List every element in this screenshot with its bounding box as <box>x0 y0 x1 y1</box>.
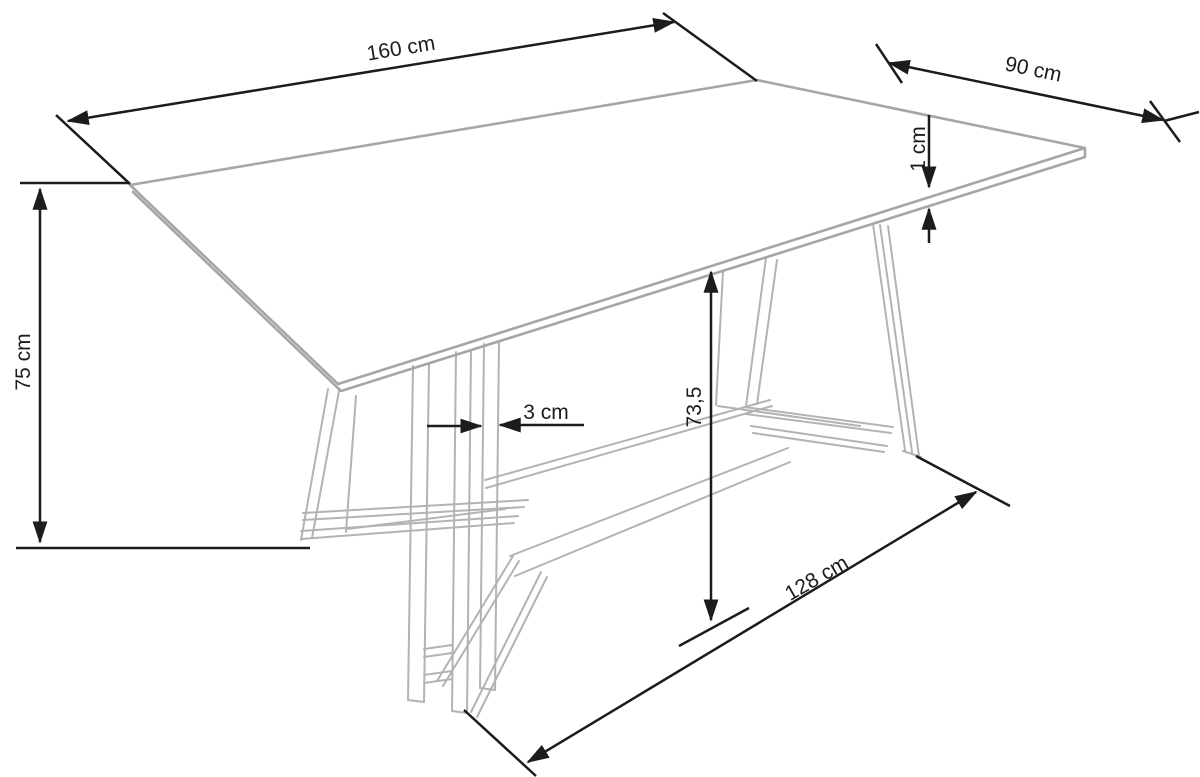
extension-line <box>464 456 1010 776</box>
dim-label-leg-bar-thickness: 3 cm <box>523 401 569 424</box>
leg-bar-line <box>873 224 921 457</box>
tabletop <box>130 80 1085 391</box>
dim-label-top-length: 160 cm <box>365 32 437 66</box>
base-stretchers <box>437 400 790 717</box>
dim-label-table-height: 75 cm <box>12 333 35 390</box>
dim-label-top-thickness: 1 cm <box>907 126 930 172</box>
dimension-table-height: 75 cm <box>12 183 310 548</box>
stretcher-rail-lower <box>510 448 790 576</box>
right-frame-far-member <box>716 271 860 426</box>
dimension-base-span: 128 cm <box>464 456 1010 776</box>
diagram-canvas: 160 cm 90 cm 1 cm 75 cm 3 cm 73,5 <box>0 0 1200 777</box>
extension-line <box>16 183 310 548</box>
dimension-underside-clearance: 73,5 <box>679 272 749 646</box>
dimension-top-thickness: 1 cm <box>907 115 930 243</box>
dim-label-top-depth: 90 cm <box>1003 53 1064 87</box>
dim-label-underside-clearance: 73,5 <box>683 387 706 428</box>
floor-reference-tick <box>679 608 749 646</box>
right-leg-bars <box>873 224 921 457</box>
leg-bar-line <box>480 342 499 690</box>
leg-bar-line <box>408 364 429 702</box>
dimension-leg-bar-thickness: 3 cm <box>427 401 584 426</box>
right-leg-frame <box>716 258 893 452</box>
tabletop-face-outline <box>130 80 1085 384</box>
table-dimension-diagram: 160 cm 90 cm 1 cm 75 cm 3 cm 73,5 <box>0 0 1200 777</box>
tabletop-underside-edge <box>133 149 1085 391</box>
left-leg-bars <box>408 342 499 713</box>
dimension-line <box>528 492 976 762</box>
right-frame-member <box>746 258 777 406</box>
dimension-line <box>68 22 674 121</box>
leg-bar-line <box>452 350 471 713</box>
dim-label-base-span: 128 cm <box>781 551 852 605</box>
left-leg-frame <box>301 389 528 540</box>
